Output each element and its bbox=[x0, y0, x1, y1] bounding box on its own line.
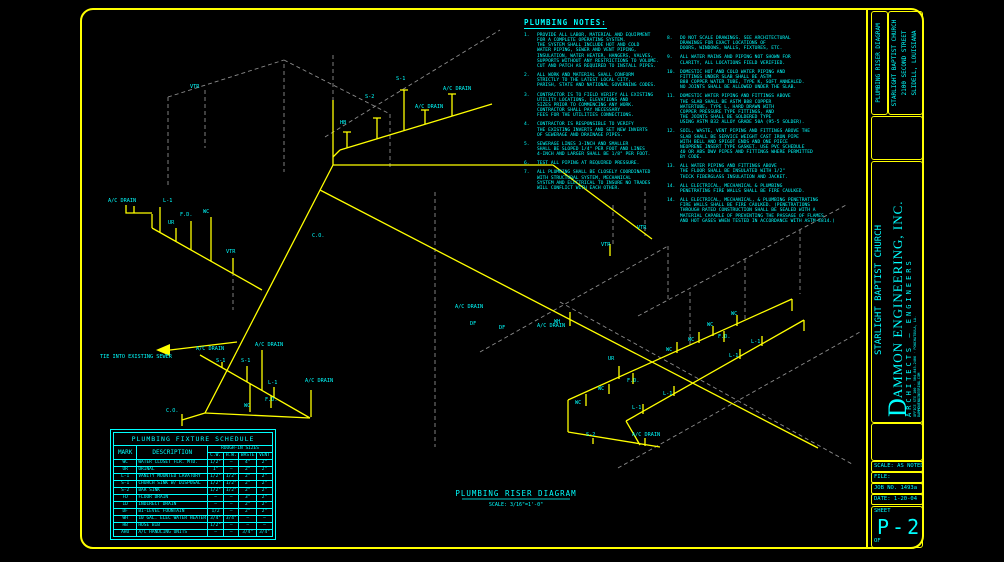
schedule-col-roughin: ROUGH-IN SIZES bbox=[208, 446, 273, 453]
schedule-subcol: WASTE bbox=[239, 453, 257, 460]
plumbing-note: 13.ALL WATER PIPING AND FITTINGS ABOVETH… bbox=[667, 164, 863, 179]
plumbing-note: 6.TEST ALL PIPING AT REQUIRED PRESSURE. bbox=[524, 161, 676, 166]
note-number: 2. bbox=[524, 73, 530, 78]
pipe-label: WC bbox=[731, 311, 737, 317]
fixture-size: — bbox=[224, 502, 239, 509]
schedule-row: IDINDIRECT DRAIN——2"2" bbox=[114, 502, 273, 509]
plumbing-note: 14.ALL ELECTRICAL, MECHANICAL & PLUMBING… bbox=[667, 184, 863, 194]
pipe-label: WC bbox=[244, 403, 250, 409]
note-number: 1. bbox=[524, 33, 530, 38]
fixture-size: 2" bbox=[239, 474, 257, 481]
project-name: STARLIGHT BAPTIST CHURCH bbox=[890, 13, 900, 113]
fixture-mark: WH bbox=[114, 516, 137, 523]
fixture-mark: DF bbox=[114, 509, 137, 516]
fixture-size: 3/4" bbox=[208, 516, 224, 523]
fixture-size: — bbox=[224, 460, 239, 467]
fixture-size: 3/4" bbox=[224, 516, 239, 523]
schedule-col-mark: MARK bbox=[114, 446, 137, 460]
pipe-label: A/C DRAIN bbox=[632, 432, 660, 438]
pipe-label: HB bbox=[340, 120, 346, 126]
plumbing-note: 2.ALL WORK AND MATERIAL SHALL CONFORMSTR… bbox=[524, 73, 676, 88]
fixture-size: 3" bbox=[239, 495, 257, 502]
plumbing-note: 9.ALL WATER MAINS AND PIPING NOT SHOWN F… bbox=[667, 55, 863, 65]
project-city: SLIDELL, LOUISIANA bbox=[910, 13, 920, 113]
note-number: 9. bbox=[667, 55, 673, 60]
schedule-subcol: C.W. bbox=[208, 453, 224, 460]
pipe-label: WC bbox=[707, 322, 713, 328]
plumbing-note: 11.DOMESTIC WATER PIPING AND FITTINGS AB… bbox=[667, 94, 863, 125]
title-block: PLUMBING RISER DIAGRAM STARLIGHT BAPTIST… bbox=[866, 8, 925, 549]
fixture-size: — bbox=[239, 516, 257, 523]
note-number: 3. bbox=[524, 93, 530, 98]
fixture-size: 2" bbox=[239, 481, 257, 488]
sheet-label: SHEET bbox=[874, 508, 891, 514]
plumbing-note: 10.DOMESTIC HOT AND COLD WATER PIPING AN… bbox=[667, 70, 863, 91]
fixture-description: WATER CLOSET FLR. MTD. bbox=[137, 460, 208, 467]
fixture-mark: AHU bbox=[114, 530, 137, 537]
firm-identity: DAMMON ENGINEERING, INC. ARCHITECTS — EN… bbox=[887, 163, 921, 417]
pipe-label: DF bbox=[470, 321, 476, 327]
fixture-description: VANITY MOUNTED LAVATORY bbox=[137, 474, 208, 481]
plumbing-fixture-schedule: PLUMBING FIXTURE SCHEDULE MARK DESCRIPTI… bbox=[113, 432, 273, 537]
plumbing-note: 14.ALL ELECTRICAL, MECHANICAL, & PLUMBIN… bbox=[667, 198, 863, 224]
schedule-row: WH10 GAL. ELEC WATER HEATER3/4"3/4"—— bbox=[114, 516, 273, 523]
job-number-field: JOB NO. 1493a bbox=[871, 483, 923, 494]
fixture-size: 2" bbox=[256, 460, 272, 467]
pipe-label: DF bbox=[499, 325, 505, 331]
schedule-row: FDFLOOR DRAIN——3"2" bbox=[114, 495, 273, 502]
revision-box bbox=[871, 116, 923, 160]
pipe-label: S-1 bbox=[241, 358, 250, 364]
schedule-row: L-1VANITY MOUNTED LAVATORY1/2"1/2"2"2" bbox=[114, 474, 273, 481]
notes-column-right: 8.DO NOT SCALE DRAWINGS. SEE ARCHITECTUR… bbox=[667, 36, 863, 228]
firm-subtitle: ARCHITECTS — ENGINEERS bbox=[906, 163, 913, 417]
note-number: 11. bbox=[667, 94, 675, 99]
sheet-title-vertical: PLUMBING RISER DIAGRAM bbox=[872, 13, 885, 113]
pipe-label: WC bbox=[598, 386, 604, 392]
pipe-label: F.D. bbox=[265, 397, 278, 403]
pipe-label: WC bbox=[688, 337, 694, 343]
pipe-label: A/C DRAIN bbox=[415, 104, 443, 110]
fixture-size: 4" bbox=[239, 460, 257, 467]
pipe-label: S-2 bbox=[586, 432, 595, 438]
note-number: 5. bbox=[524, 142, 530, 147]
sheet-number: P-2 bbox=[877, 515, 922, 539]
fixture-size: — bbox=[224, 523, 239, 530]
fixture-size: 2" bbox=[239, 467, 257, 474]
pipe-label: S-1 bbox=[216, 358, 225, 364]
fixture-description: CHURCH SINK W/ DISPOSAL bbox=[137, 481, 208, 488]
note-number: 7. bbox=[524, 170, 530, 175]
schedule-subcol: VENT bbox=[256, 453, 272, 460]
fixture-size: 3/4" bbox=[239, 530, 257, 537]
fixture-size: — bbox=[239, 523, 257, 530]
fixture-size: 1/2" bbox=[224, 481, 239, 488]
fixture-size: 2" bbox=[256, 481, 272, 488]
fixture-size: 2" bbox=[256, 474, 272, 481]
note-number: 4. bbox=[524, 122, 530, 127]
fixture-size: 1/2" bbox=[224, 474, 239, 481]
fixture-size: 3/4" bbox=[256, 530, 272, 537]
notes-title: PLUMBING NOTES: bbox=[524, 18, 607, 29]
firm-contact-line2: DAMMONENGINEERING.COM bbox=[917, 163, 921, 417]
pipe-label: VTR bbox=[601, 242, 611, 248]
pipe-label: A/C DRAIN bbox=[196, 346, 224, 352]
fixture-size: 2" bbox=[256, 502, 272, 509]
schedule-row: S-1CHURCH SINK W/ DISPOSAL1/2"1/2"2"2" bbox=[114, 481, 273, 488]
plumbing-note: 8.DO NOT SCALE DRAWINGS. SEE ARCHITECTUR… bbox=[667, 36, 863, 51]
project-street: 2100 SECOND STREET bbox=[900, 13, 910, 113]
note-number: 6. bbox=[524, 161, 530, 166]
pipe-label: L-1 bbox=[268, 380, 277, 386]
firm-name: AMMON ENGINEERING, INC. bbox=[890, 200, 905, 398]
pipe-label: F.D. bbox=[718, 334, 731, 340]
fixture-description: BI-LEVEL FOUNTAIN bbox=[137, 509, 208, 516]
file-field: FILE: bbox=[871, 472, 923, 483]
schedule-row: URURINAL1"—2"2" bbox=[114, 467, 273, 474]
fixture-size: 1/2" bbox=[208, 474, 224, 481]
fixture-description: A/C HANDLING UNITS bbox=[137, 530, 208, 537]
pipe-label: S-2 bbox=[365, 94, 374, 100]
note-number: 12. bbox=[667, 129, 675, 134]
date-field: DATE: 1-20-04 bbox=[871, 494, 923, 505]
drawing-sheet: VTRA/C DRAINL-1F.D.WCURVTRTIE INTO EXIST… bbox=[0, 0, 1004, 562]
schedule-row: DFBI-LEVEL FOUNTAIN1/2—2"2" bbox=[114, 509, 273, 516]
diagram-title: PLUMBING RISER DIAGRAM bbox=[455, 489, 576, 498]
fixture-mark: UR bbox=[114, 467, 137, 474]
pipe-label: VTR bbox=[190, 84, 200, 90]
plumbing-note: 1.PROVIDE ALL LABOR, MATERIAL AND EQUIPM… bbox=[524, 33, 676, 69]
fixture-size: 1/2" bbox=[208, 523, 224, 530]
fixture-size: — bbox=[224, 509, 239, 516]
fixture-size: 2" bbox=[256, 495, 272, 502]
pipe-label: UR bbox=[168, 220, 175, 226]
fixture-size: — bbox=[208, 530, 224, 537]
schedule-row: WCWATER CLOSET FLR. MTD.1/2"—4"2" bbox=[114, 460, 273, 467]
fixture-size: — bbox=[256, 523, 272, 530]
fixture-size: 2" bbox=[239, 509, 257, 516]
diagram-scale: SCALE: 3/16"=1'-0" bbox=[489, 502, 543, 508]
fixture-size: 2" bbox=[256, 488, 272, 495]
fixture-size: — bbox=[208, 502, 224, 509]
fixture-size: 1/2" bbox=[208, 481, 224, 488]
project-address: STARLIGHT BAPTIST CHURCH 2100 SECOND STR… bbox=[890, 13, 921, 113]
pipe-label: TIE INTO EXISTING SEWER bbox=[100, 354, 173, 360]
note-number: 14. bbox=[667, 184, 675, 189]
fixture-size: 1/2" bbox=[224, 488, 239, 495]
note-number: 14. bbox=[667, 198, 675, 203]
pipe-label: VTR bbox=[226, 249, 236, 255]
pipe-label: A/C DRAIN bbox=[455, 304, 483, 310]
client-name-vertical: STARLIGHT BAPTIST CHURCH bbox=[873, 163, 886, 417]
pipe-label: C.O. bbox=[312, 233, 325, 239]
fixture-mark: WC bbox=[114, 460, 137, 467]
fixture-description: INDIRECT DRAIN bbox=[137, 502, 208, 509]
fixture-size: 1/2" bbox=[208, 488, 224, 495]
pipe-label: WC bbox=[203, 209, 209, 215]
pipe-label: C.O. bbox=[166, 408, 179, 414]
fixture-mark: HB bbox=[114, 523, 137, 530]
fixture-description: BAR SINK bbox=[137, 488, 208, 495]
pipe-label: L-1 bbox=[729, 353, 738, 359]
fixture-description: HOSE BIB bbox=[137, 523, 208, 530]
schedule-row: HBHOSE BIB1/2"——— bbox=[114, 523, 273, 530]
fixture-size: 1/2" bbox=[208, 460, 224, 467]
pipe-label: L-1 bbox=[163, 198, 172, 204]
pipe-label: L-1 bbox=[663, 391, 672, 397]
fixture-size: 1" bbox=[208, 467, 224, 474]
fixture-mark: L-1 bbox=[114, 474, 137, 481]
pipe-label: A/C DRAIN bbox=[305, 378, 333, 384]
fixture-size: — bbox=[256, 516, 272, 523]
pipe-label: F.D. bbox=[180, 212, 193, 218]
fixture-description: 10 GAL. ELEC WATER HEATER bbox=[137, 516, 208, 523]
pipe-label: L-1 bbox=[632, 405, 641, 411]
fixture-mark: ID bbox=[114, 502, 137, 509]
pipe-label: WC bbox=[666, 347, 672, 353]
schedule-col-description: DESCRIPTION bbox=[137, 446, 208, 460]
note-number: 8. bbox=[667, 36, 673, 41]
pipe-label: A/C DRAIN bbox=[443, 86, 471, 92]
pipe-label: VTR bbox=[637, 225, 647, 231]
fixture-description: URINAL bbox=[137, 467, 208, 474]
fixture-size: — bbox=[224, 495, 239, 502]
note-number: 13. bbox=[667, 164, 675, 169]
schedule-title: PLUMBING FIXTURE SCHEDULE bbox=[114, 433, 273, 446]
fixture-size: — bbox=[224, 467, 239, 474]
fixture-size: 2" bbox=[239, 502, 257, 509]
plumbing-note: 4.CONTRACTOR IS RESPONSIBLE TO VERIFYTHE… bbox=[524, 122, 676, 137]
fixture-size: — bbox=[224, 530, 239, 537]
pipe-label: F.D. bbox=[627, 378, 640, 384]
pipe-label: WC bbox=[575, 400, 581, 406]
pipe-label: A/C DRAIN bbox=[537, 323, 565, 329]
fixture-size: — bbox=[208, 495, 224, 502]
scale-field: SCALE: AS NOTED bbox=[871, 461, 923, 472]
plumbing-note: 3.CONTRACTOR IS TO FIELD VERIFY ALL EXIS… bbox=[524, 93, 676, 119]
fixture-mark: S-1 bbox=[114, 481, 137, 488]
pipe-label: A/C DRAIN bbox=[108, 198, 136, 204]
fixture-size: 2" bbox=[239, 488, 257, 495]
fixture-size: 2" bbox=[256, 509, 272, 516]
schedule-row: AHUA/C HANDLING UNITS——3/4"3/4" bbox=[114, 530, 273, 537]
fixture-description: FLOOR DRAIN bbox=[137, 495, 208, 502]
pipe-label: S-1 bbox=[396, 76, 405, 82]
pipe-label: L-1 bbox=[751, 339, 760, 345]
schedule-subcol: H.W. bbox=[224, 453, 239, 460]
plumbing-note: 7.ALL PLUMBING SHALL BE CLOSELY COORDINA… bbox=[524, 170, 676, 191]
notes-column-left: 1.PROVIDE ALL LABOR, MATERIAL AND EQUIPM… bbox=[524, 33, 676, 195]
fixture-size: 2" bbox=[256, 467, 272, 474]
stamp-box bbox=[871, 423, 923, 461]
fixture-mark: S-2 bbox=[114, 488, 137, 495]
fixture-size: 1/2 bbox=[208, 509, 224, 516]
fixture-mark: FD bbox=[114, 495, 137, 502]
pipe-label: WH bbox=[554, 319, 560, 325]
sheet-of-label: OF bbox=[874, 538, 881, 544]
schedule-row: S-2BAR SINK1/2"1/2"2"2" bbox=[114, 488, 273, 495]
pipe-label: UR bbox=[608, 356, 615, 362]
note-number: 10. bbox=[667, 70, 675, 75]
plumbing-note: 5.SEWERAGE LINES 3-INCH AND SMALLERSHALL… bbox=[524, 142, 676, 157]
pipe-label: A/C DRAIN bbox=[255, 342, 283, 348]
plumbing-note: 12.SOIL, WASTE, VENT PIPING AND FITTINGS… bbox=[667, 129, 863, 160]
